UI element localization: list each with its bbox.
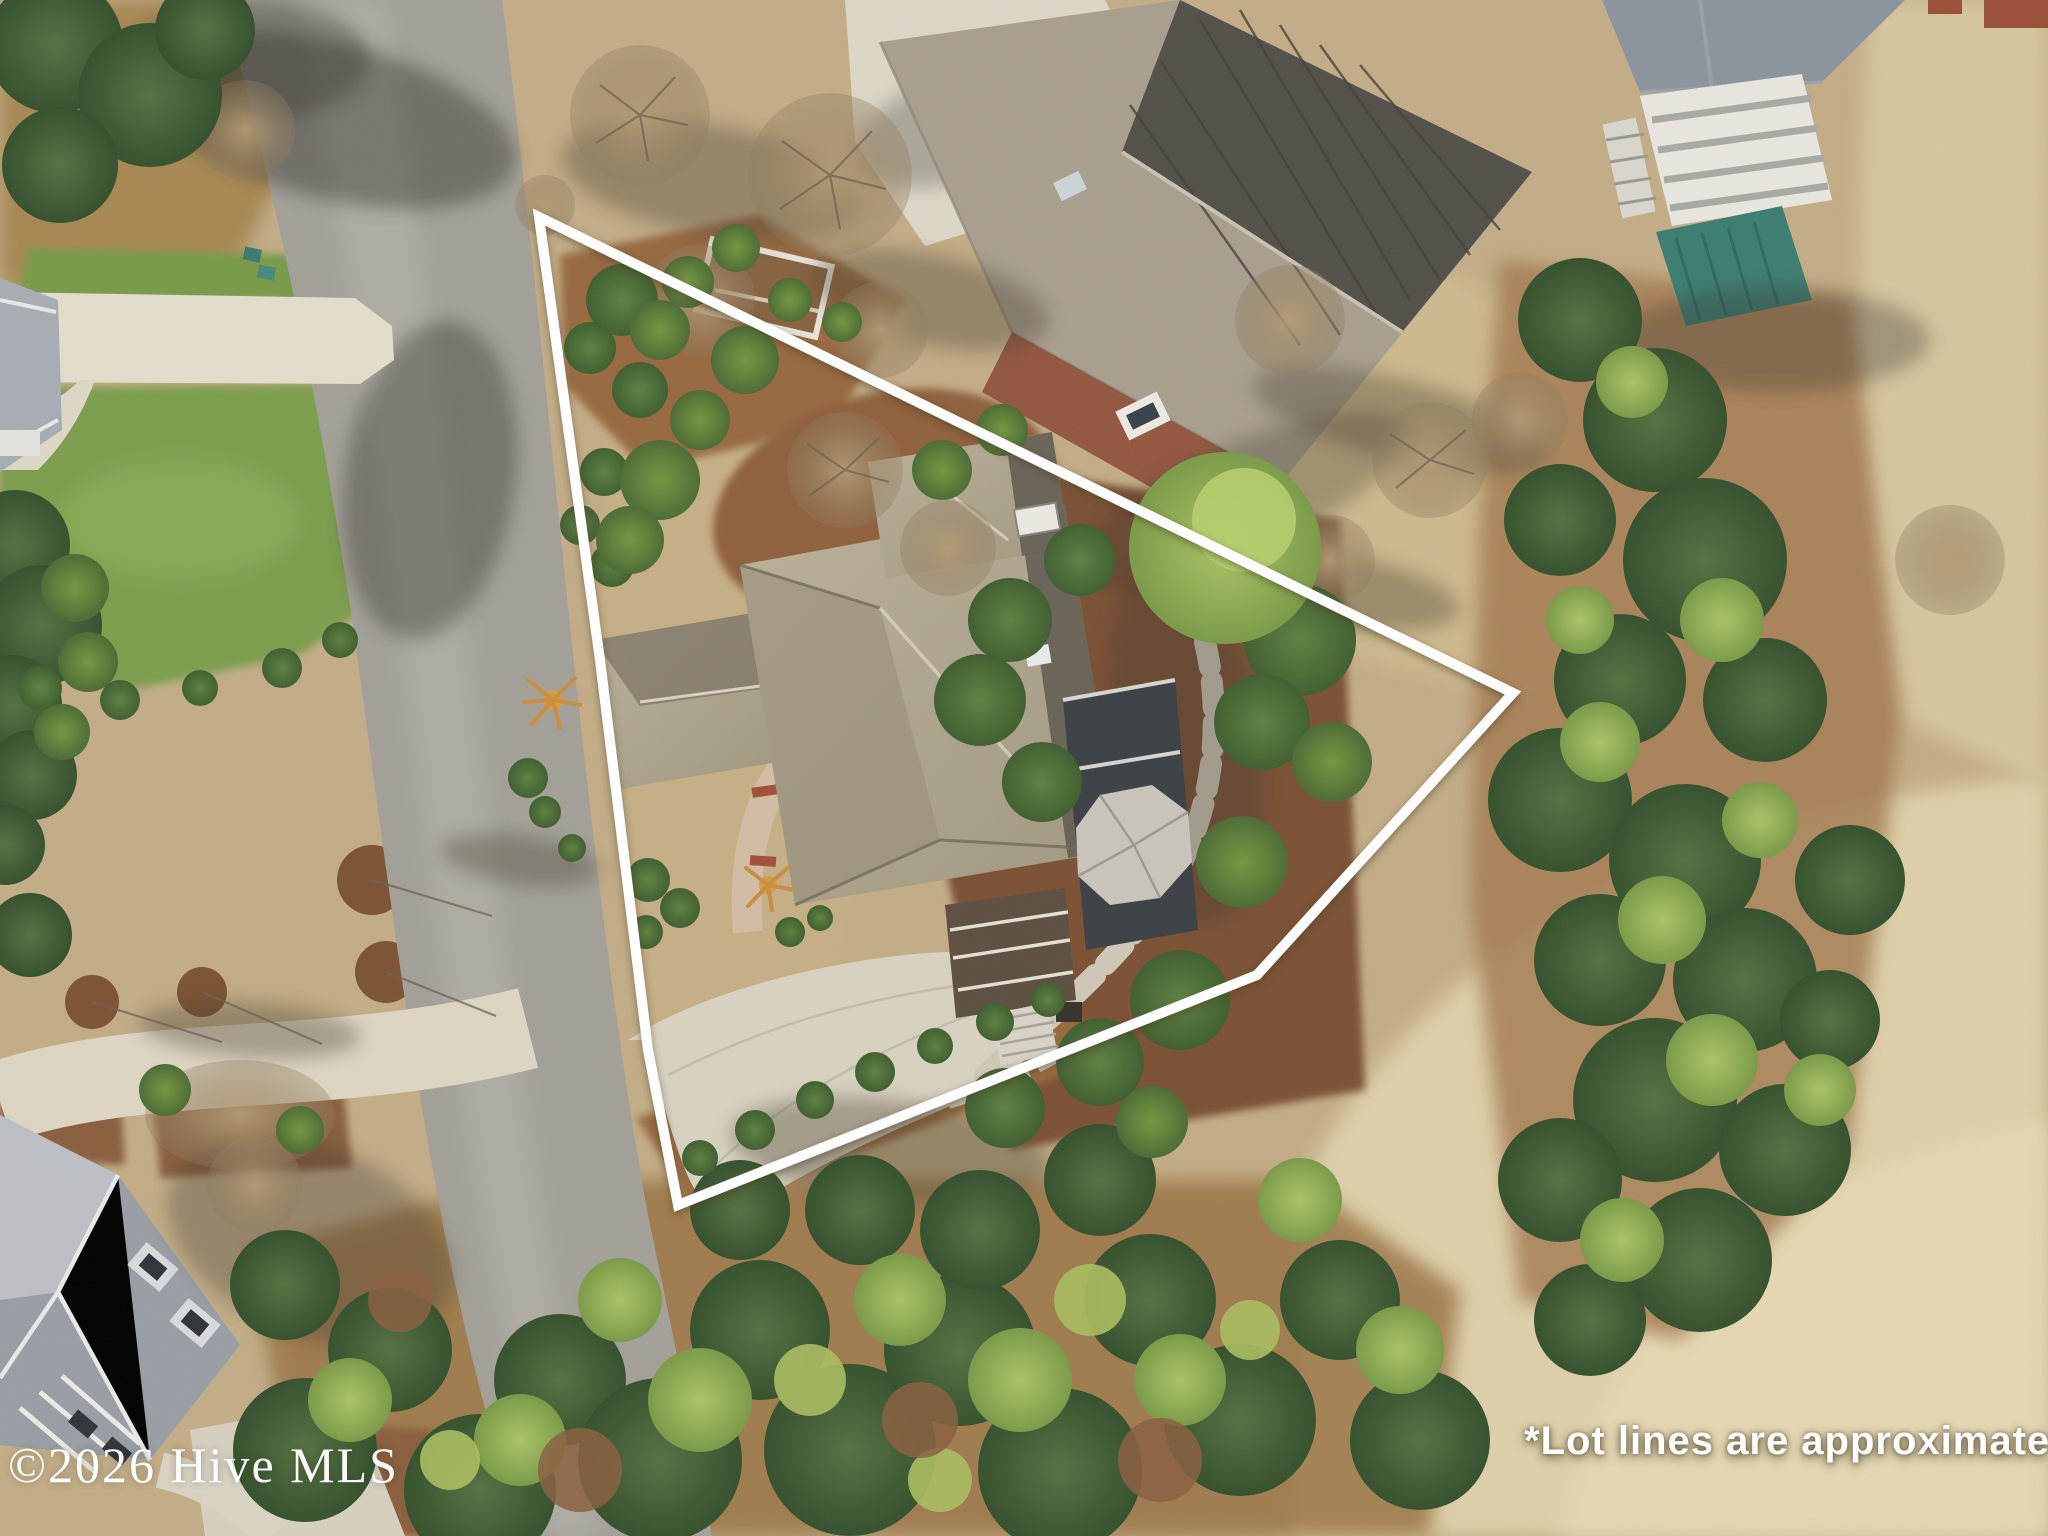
scene-canvas	[0, 0, 2048, 1536]
aerial-photo: ©2026 Hive MLS *Lot lines are approximat…	[0, 0, 2048, 1536]
photo-grain	[0, 0, 2048, 1536]
